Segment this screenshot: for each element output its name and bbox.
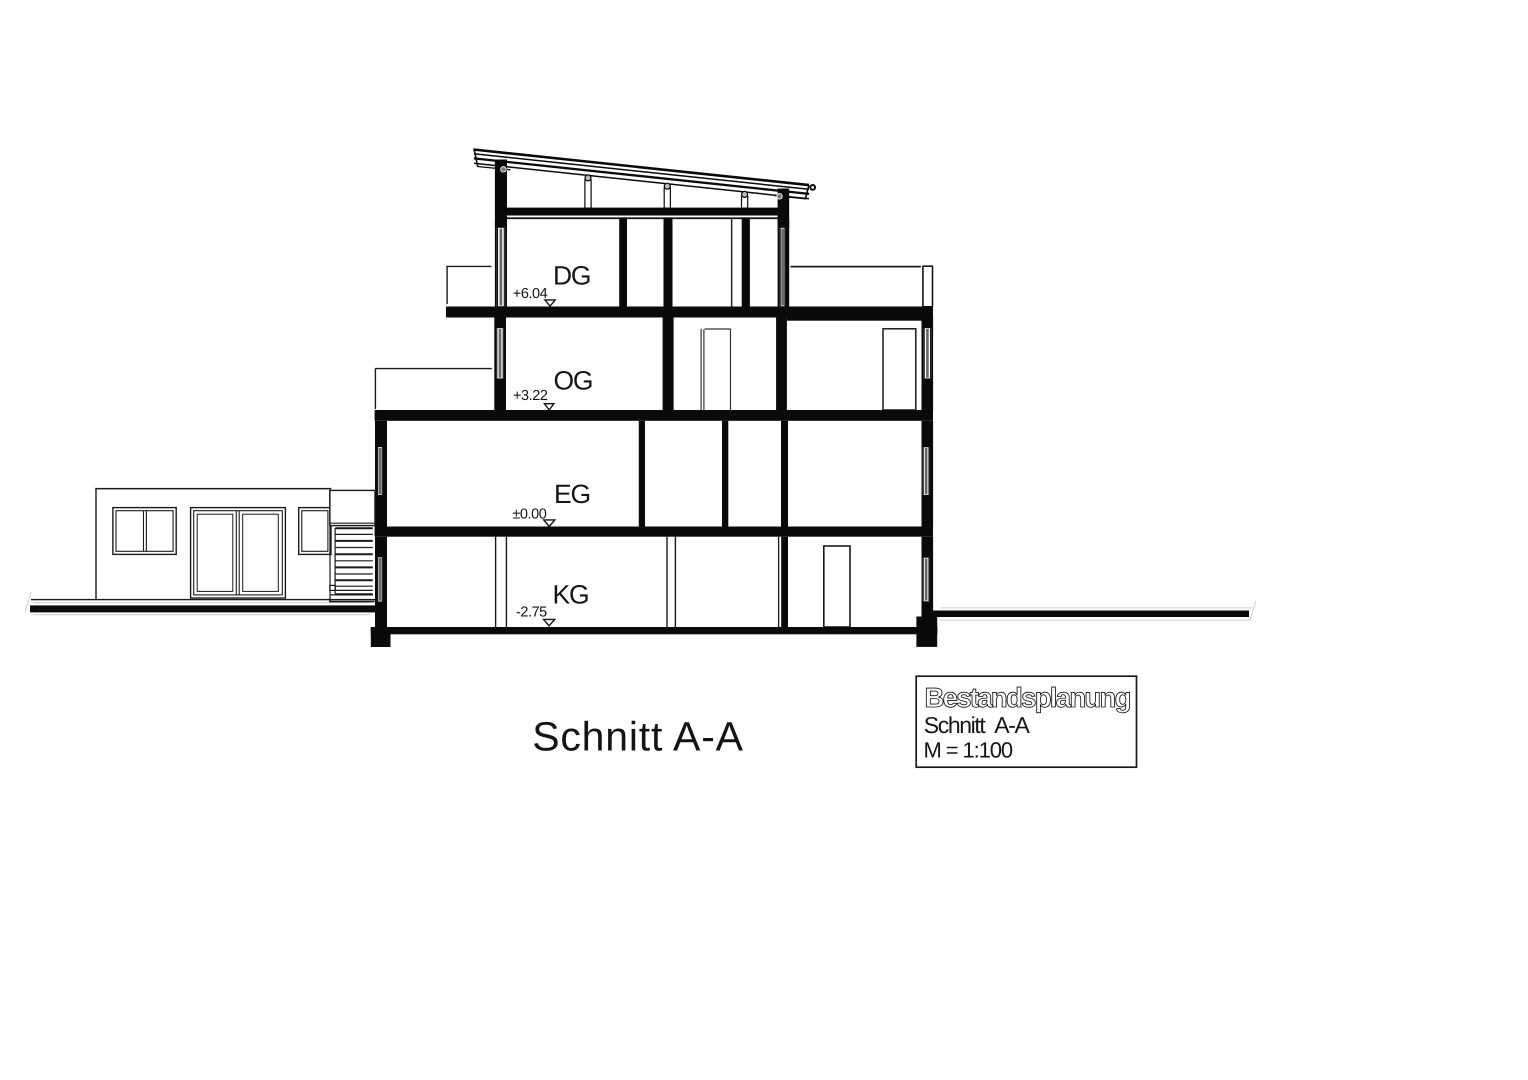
svg-text:Bestandsplanung: Bestandsplanung	[925, 682, 1130, 713]
svg-text:OG: OG	[554, 366, 593, 396]
svg-text:±0.00: ±0.00	[512, 506, 546, 522]
svg-text:+6.04: +6.04	[513, 286, 548, 302]
svg-text:+3.22: +3.22	[513, 388, 548, 404]
svg-text:DG: DG	[553, 260, 590, 290]
svg-text:KG: KG	[553, 579, 589, 609]
svg-text:-2.75: -2.75	[516, 604, 547, 620]
svg-text:EG: EG	[554, 479, 590, 509]
svg-text:Schnitt A-A: Schnitt A-A	[532, 713, 744, 759]
svg-text:Schnitt A-A: Schnitt A-A	[924, 712, 1031, 738]
svg-text:M = 1:100: M = 1:100	[924, 738, 1013, 763]
